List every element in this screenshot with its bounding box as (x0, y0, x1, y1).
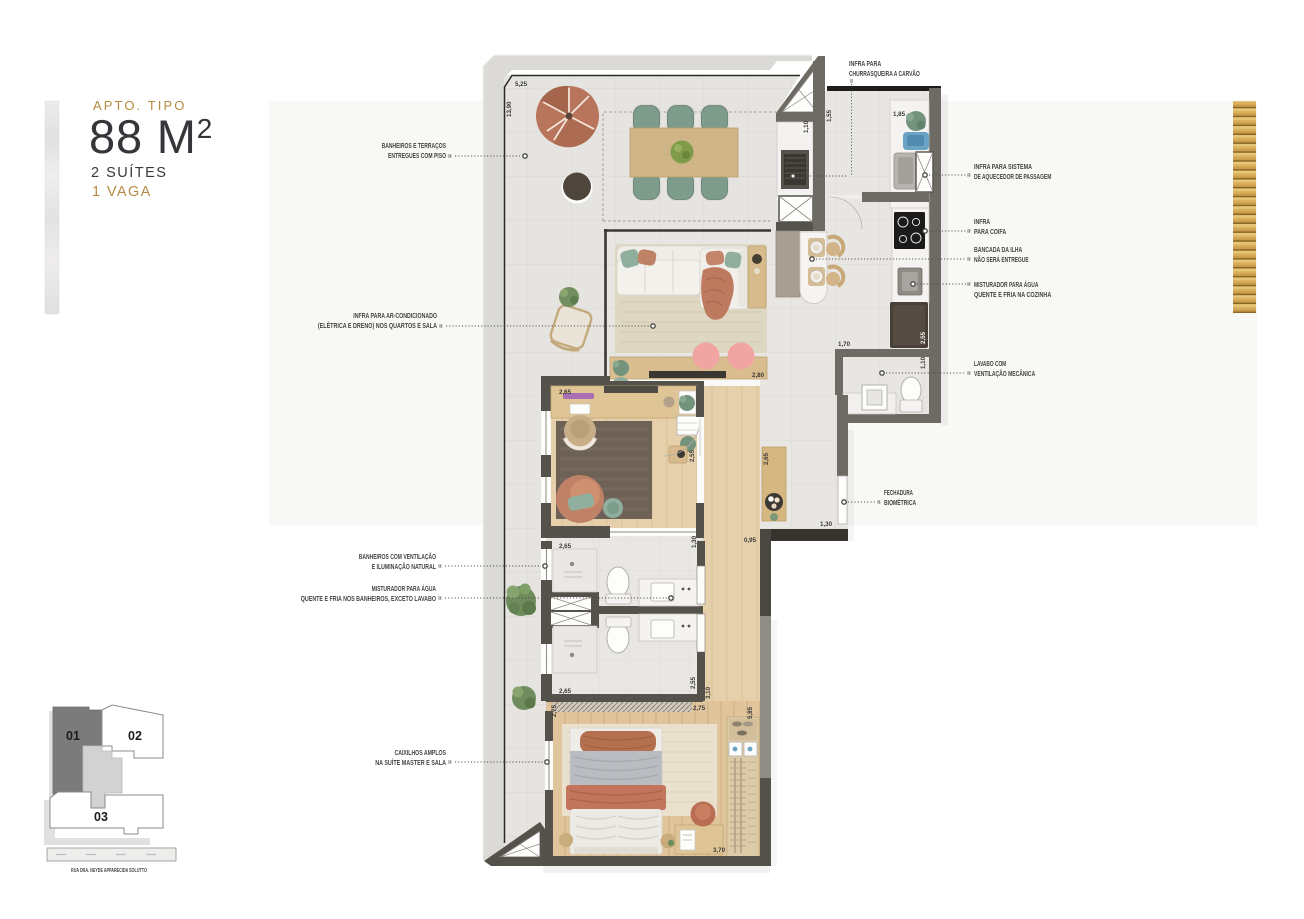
svg-text:2,65: 2,65 (763, 452, 770, 465)
svg-text:3,10: 3,10 (705, 686, 712, 699)
svg-text:88 M2: 88 M2 (89, 110, 213, 163)
svg-text:RUA DRA. NEYDE APPARECIDA SOLU: RUA DRA. NEYDE APPARECIDA SOLUTTO (71, 868, 147, 874)
svg-text:1 VAGA: 1 VAGA (92, 184, 152, 200)
svg-text:03: 03 (94, 810, 108, 824)
svg-text:BANCADA DA ILHA: BANCADA DA ILHA (974, 245, 1022, 254)
svg-text:2,80: 2,80 (752, 372, 765, 379)
svg-text:1,55: 1,55 (826, 109, 833, 122)
svg-text:2,65: 2,65 (559, 389, 572, 396)
svg-text:(ELÉTRICA E DRENO) NOS QUARTOS: (ELÉTRICA E DRENO) NOS QUARTOS E SALA (318, 321, 437, 330)
svg-text:VENTILAÇÃO MECÂNICA: VENTILAÇÃO MECÂNICA (974, 369, 1035, 378)
svg-text:2,75: 2,75 (693, 705, 706, 712)
svg-text:LAVABO COM: LAVABO COM (974, 359, 1006, 368)
svg-text:QUENTE E FRIA NA COZINHA: QUENTE E FRIA NA COZINHA (974, 290, 1051, 299)
svg-text:1,85: 1,85 (893, 111, 906, 118)
svg-text:2 SUÍTES: 2 SUÍTES (91, 164, 167, 181)
svg-text:DE AQUECEDOR DE PASSAGEM: DE AQUECEDOR DE PASSAGEM (974, 172, 1051, 181)
svg-text:ENTREGUES COM PISO: ENTREGUES COM PISO (388, 151, 446, 160)
svg-text:INFRA PARA: INFRA PARA (849, 59, 881, 68)
svg-text:02: 02 (128, 729, 142, 743)
svg-text:1,10: 1,10 (920, 356, 927, 369)
svg-text:FECHADURA: FECHADURA (884, 488, 913, 497)
svg-text:1,30: 1,30 (820, 521, 833, 528)
svg-text:QUENTE E FRIA NOS BANHEIROS, E: QUENTE E FRIA NOS BANHEIROS, EXCETO LAVA… (301, 594, 436, 603)
svg-text:1,10: 1,10 (803, 120, 810, 133)
svg-text:2,65: 2,65 (559, 688, 572, 695)
svg-text:E ILUMINAÇÃO NATURAL: E ILUMINAÇÃO NATURAL (372, 562, 437, 571)
svg-text:MISTURADOR PARA ÁGUA: MISTURADOR PARA ÁGUA (974, 280, 1038, 289)
svg-text:0,95: 0,95 (744, 537, 757, 544)
svg-text:2,55: 2,55 (920, 331, 927, 344)
svg-text:INFRA PARA AR-CONDICIONADO: INFRA PARA AR-CONDICIONADO (353, 311, 437, 320)
svg-text:CAIXILHOS AMPLOS: CAIXILHOS AMPLOS (395, 748, 447, 757)
svg-text:2,65: 2,65 (559, 543, 572, 550)
svg-text:2,55: 2,55 (689, 449, 696, 462)
svg-text:1,30: 1,30 (691, 535, 698, 548)
svg-text:BANHEIROS E TERRAÇOS: BANHEIROS E TERRAÇOS (382, 141, 447, 150)
svg-text:2,55: 2,55 (690, 676, 697, 689)
svg-text:MISTURADOR PARA ÁGUA: MISTURADOR PARA ÁGUA (372, 584, 436, 593)
svg-text:INFRA: INFRA (974, 217, 990, 226)
svg-text:13,90: 13,90 (506, 101, 513, 117)
svg-text:1,70: 1,70 (838, 341, 851, 348)
svg-text:2,75: 2,75 (551, 704, 558, 717)
svg-text:5,25: 5,25 (515, 81, 528, 88)
svg-text:01: 01 (66, 729, 80, 743)
svg-text:PARA COIFA: PARA COIFA (974, 227, 1006, 236)
svg-text:INFRA PARA SISTEMA: INFRA PARA SISTEMA (974, 162, 1032, 171)
svg-text:5,85: 5,85 (747, 706, 754, 719)
svg-text:BIOMÉTRICA: BIOMÉTRICA (884, 498, 916, 507)
svg-text:3,70: 3,70 (713, 847, 726, 854)
svg-text:NA SUÍTE MASTER E SALA: NA SUÍTE MASTER E SALA (375, 758, 446, 767)
svg-text:NÃO SERÁ ENTREGUE: NÃO SERÁ ENTREGUE (974, 255, 1029, 264)
svg-text:CHURRASQUEIRA A CARVÃO: CHURRASQUEIRA A CARVÃO (849, 69, 920, 78)
svg-text:BANHEIROS COM VENTILAÇÃO: BANHEIROS COM VENTILAÇÃO (359, 552, 437, 561)
